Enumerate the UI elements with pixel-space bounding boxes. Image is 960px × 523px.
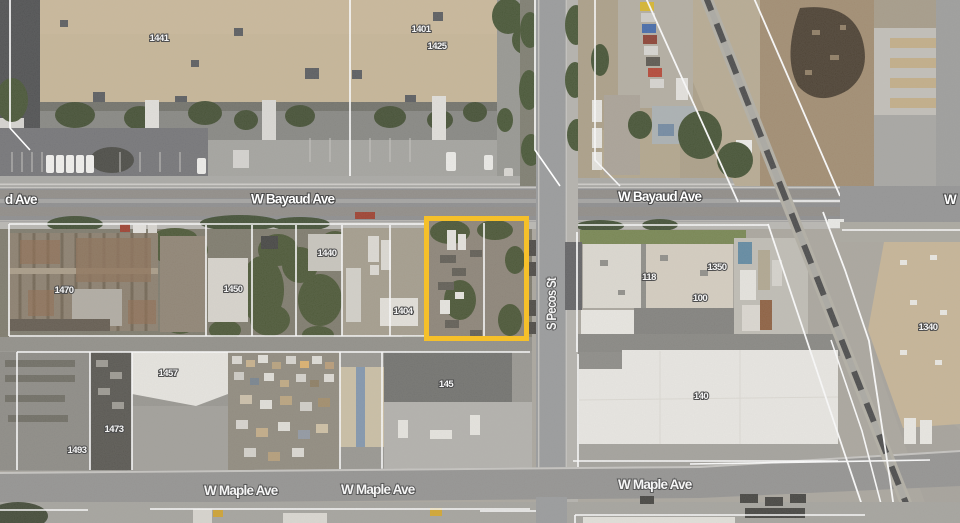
svg-text:W: W: [944, 192, 957, 207]
svg-text:W Bayaud Ave: W Bayaud Ave: [251, 192, 335, 207]
svg-text:d Ave: d Ave: [5, 192, 38, 207]
svg-text:W Bayaud Ave: W Bayaud Ave: [618, 189, 702, 204]
